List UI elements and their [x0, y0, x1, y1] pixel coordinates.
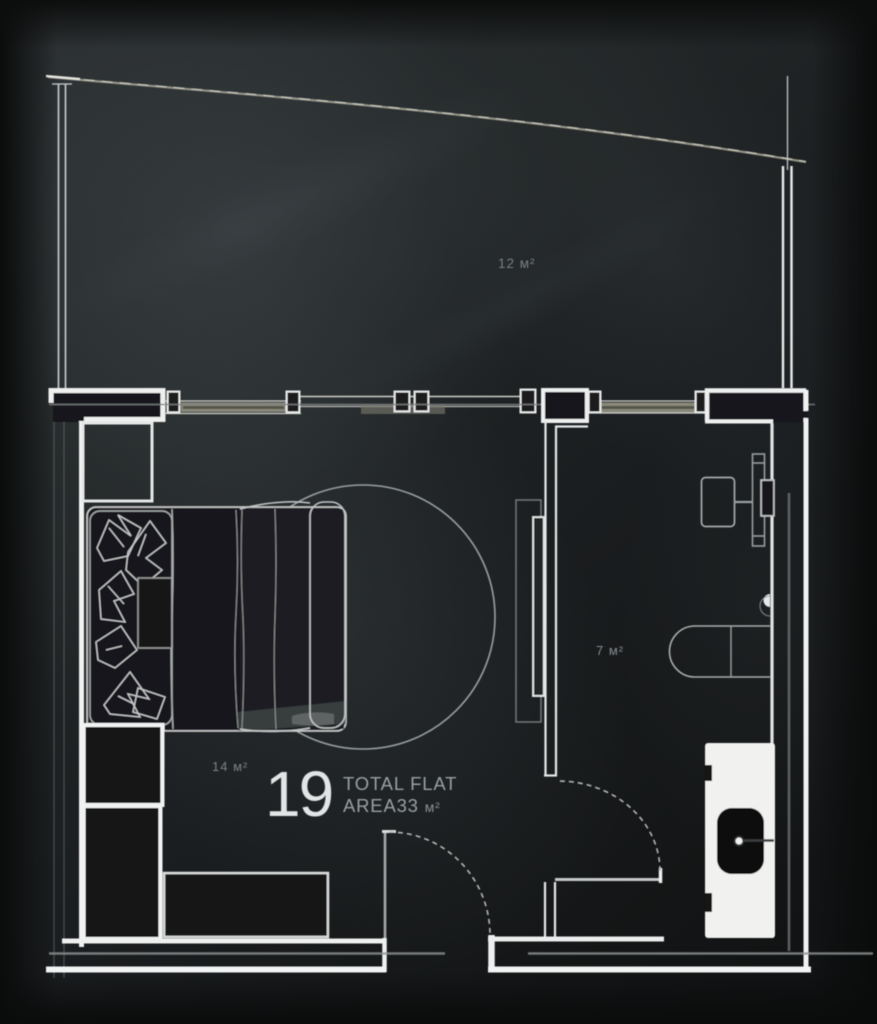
- svg-text:7 м²: 7 м²: [596, 643, 624, 658]
- svg-text:19: 19: [265, 758, 332, 830]
- svg-text:AREA33 м²: AREA33 м²: [343, 795, 441, 816]
- svg-text:TOTAL FLAT: TOTAL FLAT: [343, 773, 457, 794]
- svg-text:14 м²: 14 м²: [212, 759, 248, 774]
- svg-text:12 м²: 12 м²: [498, 256, 536, 271]
